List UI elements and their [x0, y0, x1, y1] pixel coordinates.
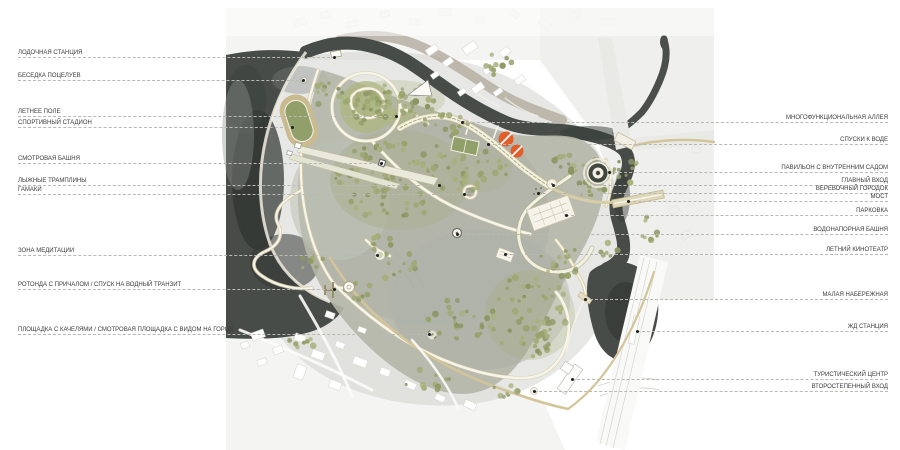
callout-label: ПАРКОВКА [856, 208, 888, 215]
callout-label: ЛЕТНЕЕ ПОЛЕ [18, 109, 60, 116]
leader-dot [584, 298, 587, 301]
leader-dot [333, 288, 336, 291]
callout-label: МОСТ [871, 194, 888, 201]
callout-secondary-entrance: ВТОРОСТЕПЕННЫЙ ВХОД [534, 382, 888, 392]
leader-dot [395, 115, 398, 118]
leader-dot [333, 56, 336, 59]
leader-dot [627, 200, 630, 203]
callout-pavilion-inner-garden: ПАВИЛЬОН С ВНУТРЕННИМ САДОМ [609, 163, 888, 173]
leader-dot [376, 254, 379, 257]
leader-dot [636, 330, 639, 333]
callout-summer-cinema: ЛЕТНИЙ КИНОТЕАТР [505, 245, 888, 255]
leader-dot [456, 233, 459, 236]
callout-water-descents: СПУСКИ К ВОДЕ [488, 135, 888, 145]
callout-tourist-center: ТУРИСТИЧЕСКИЙ ЦЕНТР [572, 370, 888, 380]
callout-label: ЗОНА МЕДИТАЦИИ [18, 248, 74, 255]
leader-dot [565, 214, 568, 217]
callout-observation-tower: СМОТРОВАЯ БАШНЯ [18, 154, 382, 164]
callout-label: РОТОНДА С ПРИЧАЛОМ / СПУСК НА ВОДНЫЙ ТРА… [18, 282, 181, 289]
leader-dot [537, 192, 540, 195]
callout-label: ТУРИСТИЧЕСКИЙ ЦЕНТР [814, 372, 888, 379]
leader-dot [463, 193, 466, 196]
callout-label: ВОДОНАПОРНАЯ БАШНЯ [813, 227, 888, 234]
callout-label: ГАМАКИ [18, 187, 42, 194]
callout-hammocks: ГАМАКИ [18, 185, 465, 195]
callout-swing-overlook: ПЛОЩАДКА С КАЧЕЛЯМИ / СМОТРОВАЯ ПЛОЩАДКА… [18, 325, 430, 335]
leader-dot [608, 171, 611, 174]
callout-railway-station: ЖД СТАНЦИЯ [637, 322, 888, 332]
callout-label: СПУСКИ К ВОДЕ [840, 137, 888, 144]
top-fade [226, 8, 714, 36]
callout-label: ЛЕТНИЙ КИНОТЕАТР [826, 247, 888, 254]
callout-boat-station: ЛОДОЧНАЯ СТАНЦИЯ [18, 48, 335, 58]
leader-dot [487, 143, 490, 146]
callout-label: МАЛАЯ НАБЕРЕЖНАЯ [822, 292, 888, 299]
callout-label: БЕСЕДКА ПОЦЕЛУЕВ [18, 73, 81, 80]
callout-label: МНОГОФУНКЦИОНАЛЬНАЯ АЛЛЕЯ [786, 115, 888, 122]
callout-bridge: МОСТ [628, 192, 888, 202]
leader-dot [461, 121, 464, 124]
callout-label: СПОРТИВНЫЙ СТАДИОН [18, 120, 92, 127]
callout-label: ПЛОЩАДКА С КАЧЕЛЯМИ / СМОТРОВАЯ ПЛОЩАДКА… [18, 327, 233, 334]
callout-label: ЛОДОЧНАЯ СТАНЦИЯ [18, 50, 82, 57]
callout-rotunda-pier: РОТОНДА С ПРИЧАЛОМ / СПУСК НА ВОДНЫЙ ТРА… [18, 280, 335, 290]
callout-parking: ПАРКОВКА [566, 206, 888, 216]
leader-dot [504, 253, 507, 256]
callout-label: ЛЫЖНЫЕ ТРАМПЛИНЫ [18, 178, 87, 185]
callout-label: ВТОРОСТЕПЕННЫЙ ВХОД [812, 384, 888, 391]
callout-meditation-zone: ЗОНА МЕДИТАЦИИ [18, 246, 378, 256]
park-masterplan: ЛОДОЧНАЯ СТАНЦИЯБЕСЕДКА ПОЦЕЛУЕВЛЕТНЕЕ П… [0, 0, 900, 450]
callout-sports-stadium: СПОРТИВНЫЙ СТАДИОН [18, 118, 293, 128]
callout-small-embankment: МАЛАЯ НАБЕРЕЖНАЯ [585, 290, 888, 300]
callout-label: СМОТРОВАЯ БАШНЯ [18, 156, 80, 163]
leader-dot [533, 390, 536, 393]
callout-label: ЖД СТАНЦИЯ [848, 324, 888, 331]
callout-multifunctional-alley: МНОГОФУНКЦИОНАЛЬНАЯ АЛЛЕЯ [462, 113, 888, 123]
leader-dot [380, 162, 383, 165]
leader-dot [428, 333, 431, 336]
callout-summer-field: ЛЕТНЕЕ ПОЛЕ [18, 107, 397, 117]
leader-dot [571, 378, 574, 381]
leader-dot [291, 126, 294, 129]
callout-water-tower: ВОДОНАПОРНАЯ БАШНЯ [457, 225, 888, 235]
callout-label: ПАВИЛЬОН С ВНУТРЕННИМ САДОМ [781, 165, 888, 172]
callout-kissing-gazebo: БЕСЕДКА ПОЦЕЛУЕВ [18, 71, 304, 81]
leader-dot [302, 79, 305, 82]
